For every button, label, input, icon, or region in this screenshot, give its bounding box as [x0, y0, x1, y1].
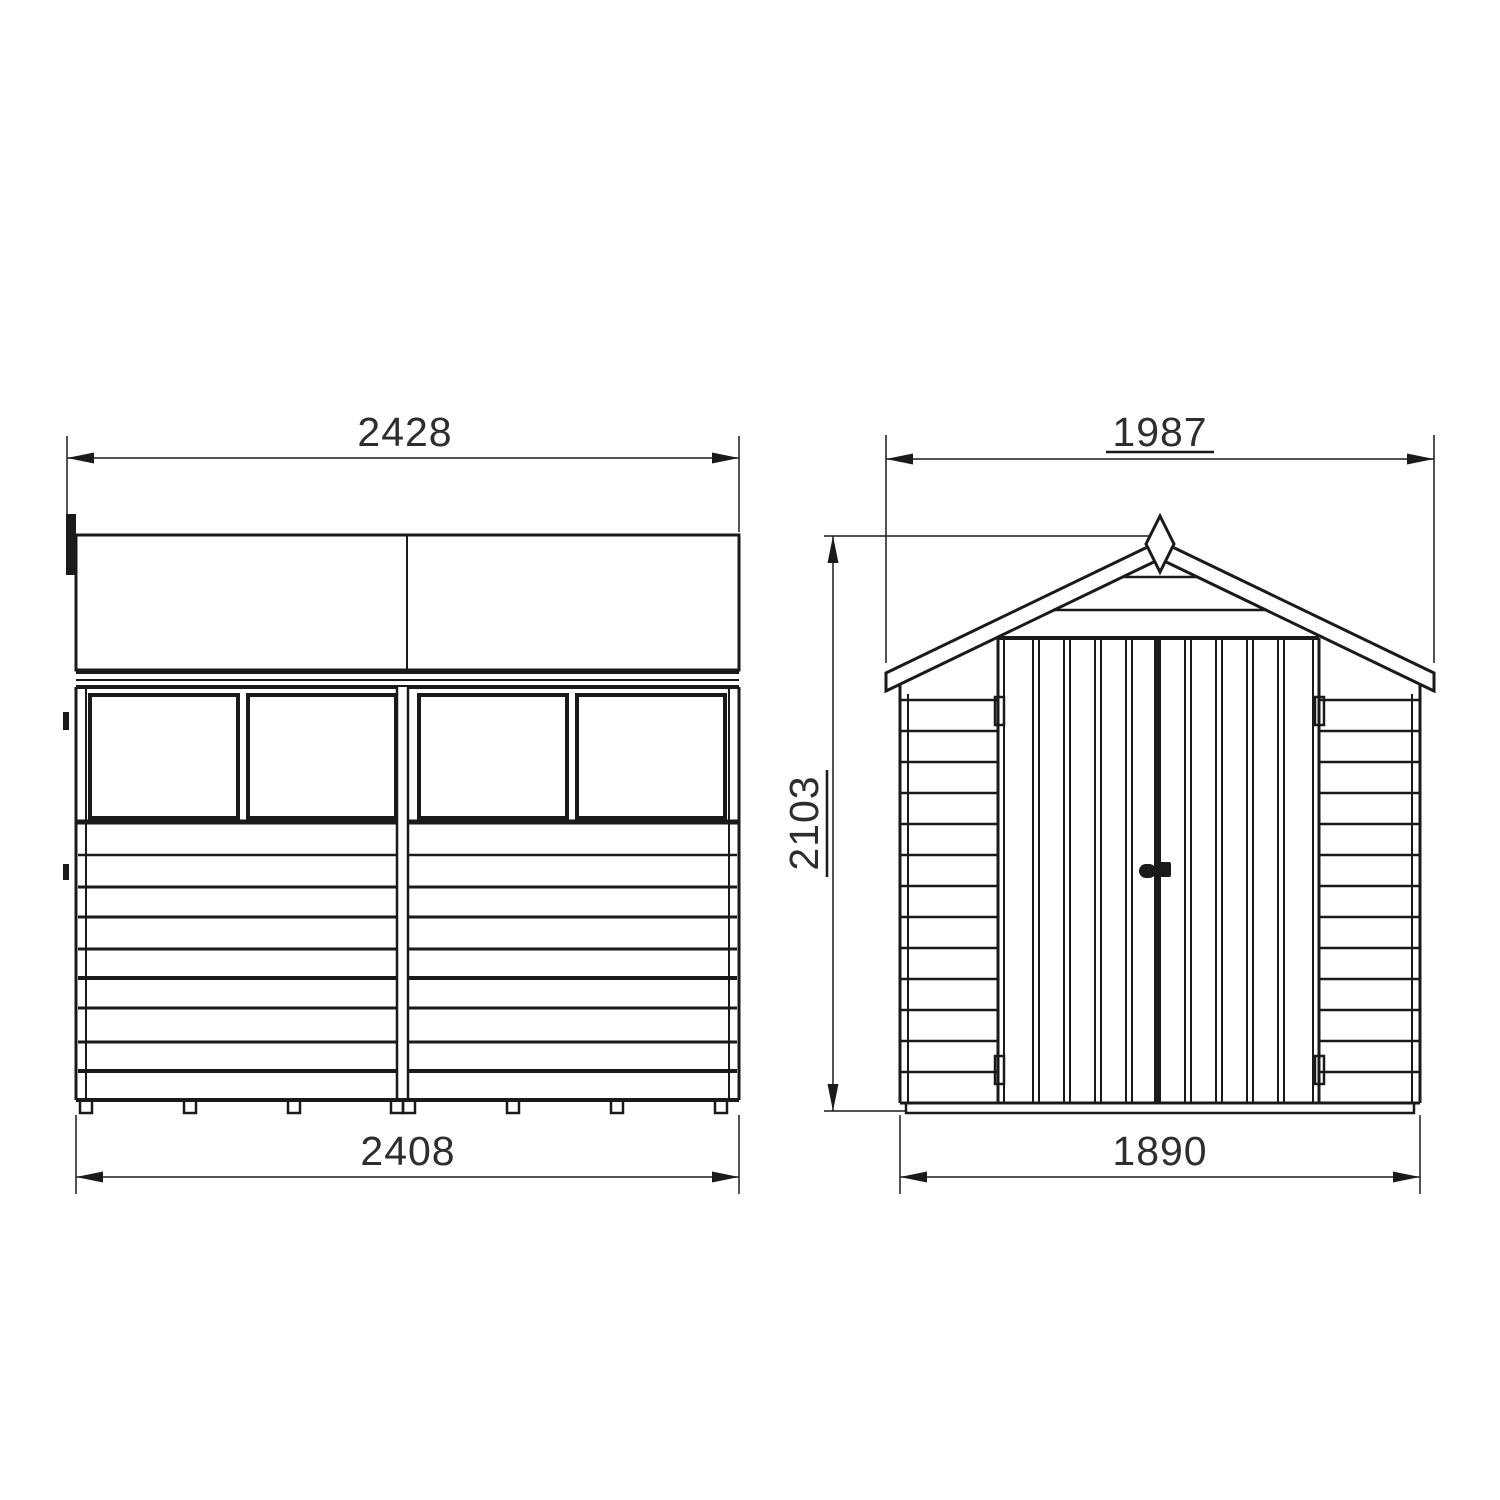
dimension-label: 1890 [1112, 1128, 1207, 1174]
drawing-background [0, 0, 1500, 1500]
centre-post [397, 687, 408, 1100]
dimension-label: 1987 [1112, 409, 1207, 455]
technical-drawing-page: 2428 [0, 0, 1500, 1500]
edge-bracket-tick [63, 864, 69, 880]
edge-bracket-tick [63, 712, 69, 730]
dimension-label: 2428 [357, 409, 452, 455]
front-bargeboard-edge [66, 514, 76, 575]
dimension-label: 2408 [360, 1128, 455, 1174]
dimension-label: 2103 [781, 775, 827, 870]
shed-orthographic-drawing: 2428 [0, 0, 1500, 1500]
